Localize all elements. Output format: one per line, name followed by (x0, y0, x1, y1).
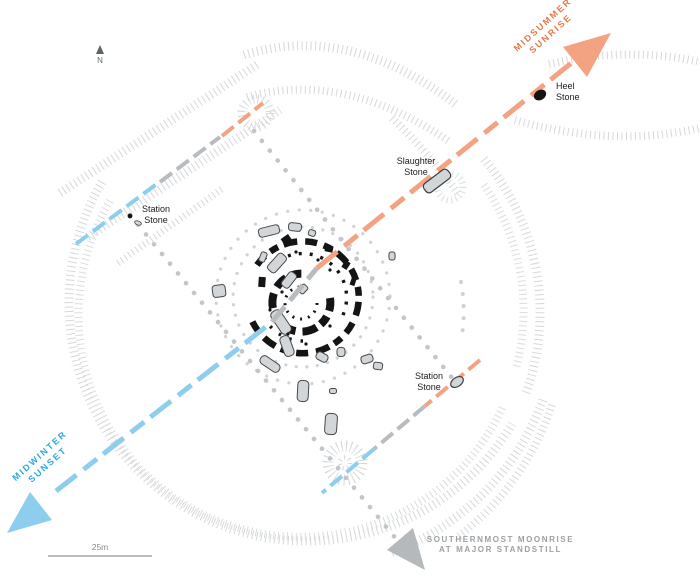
stone-hole-rings (216, 210, 464, 384)
southernmost-moonrise-label: SOUTHERNMOST MOONRISE AT MAJOR STANDSTIL… (413, 535, 588, 555)
aubrey-holes-arc (461, 282, 464, 335)
alignment-lines (7, 33, 611, 570)
earthwork-bank (60, 46, 700, 553)
station-stone-se-label-line2: Stone (405, 382, 453, 393)
southernmost-moonrise-label-line2: AT MAJOR STANDSTILL (413, 545, 588, 555)
southernmost-moonrise-label-line1: SOUTHERNMOST MOONRISE (413, 535, 588, 545)
stonehenge-plan-figure: N 25m Heel Stone Slaughter Stone Station… (0, 0, 700, 576)
rectangle-side-sw (130, 215, 397, 540)
z-holes-ring (233, 227, 373, 367)
avenue-west-bank-2 (88, 110, 280, 237)
heel-bank-2 (515, 120, 700, 136)
heel-stone-label: Heel Stone (556, 81, 580, 102)
se-side-blue (322, 449, 374, 493)
bank-north-inner (247, 90, 450, 142)
south-barrow-inner (340, 458, 350, 468)
midsummer-sunrise-arrowhead (563, 33, 611, 77)
se-side-gray (374, 406, 425, 449)
nw-side-orange (222, 103, 263, 136)
bank-main-inner (79, 201, 503, 537)
nw-side-gray (160, 137, 220, 182)
north-arrow-icon (96, 45, 104, 54)
midwinter-sunset-line (56, 322, 272, 491)
station-stone-se-label: Station Stone (405, 371, 453, 392)
station-stone-nw-label-line2: Stone (132, 215, 180, 226)
north-label: N (93, 56, 107, 65)
slaughter-stone-label: Slaughter Stone (381, 156, 451, 177)
stonehenge-plan-canvas (0, 0, 700, 576)
slaughter-stone-label-line1: Slaughter (381, 156, 451, 167)
slaughter-stone-label-line2: Stone (381, 167, 451, 178)
heel-stone-label-line2: Stone (556, 92, 580, 103)
station-stone-nw-label-line1: Station (132, 204, 180, 215)
station-stone-se-label-line1: Station (405, 371, 453, 382)
bank-se-splay-2 (459, 405, 552, 536)
bluestone-circle-arc-1 (288, 254, 347, 319)
bank-right-outer (484, 159, 540, 393)
station-rectangle (130, 131, 453, 540)
heel-stone-label-line1: Heel (556, 81, 580, 92)
bank-main-outer (69, 182, 512, 541)
scale-bar-label: 25m (80, 542, 120, 552)
central-monument (212, 222, 395, 435)
bank-north-outer (244, 46, 458, 106)
station-stone-nw-label: Station Stone (132, 204, 180, 225)
